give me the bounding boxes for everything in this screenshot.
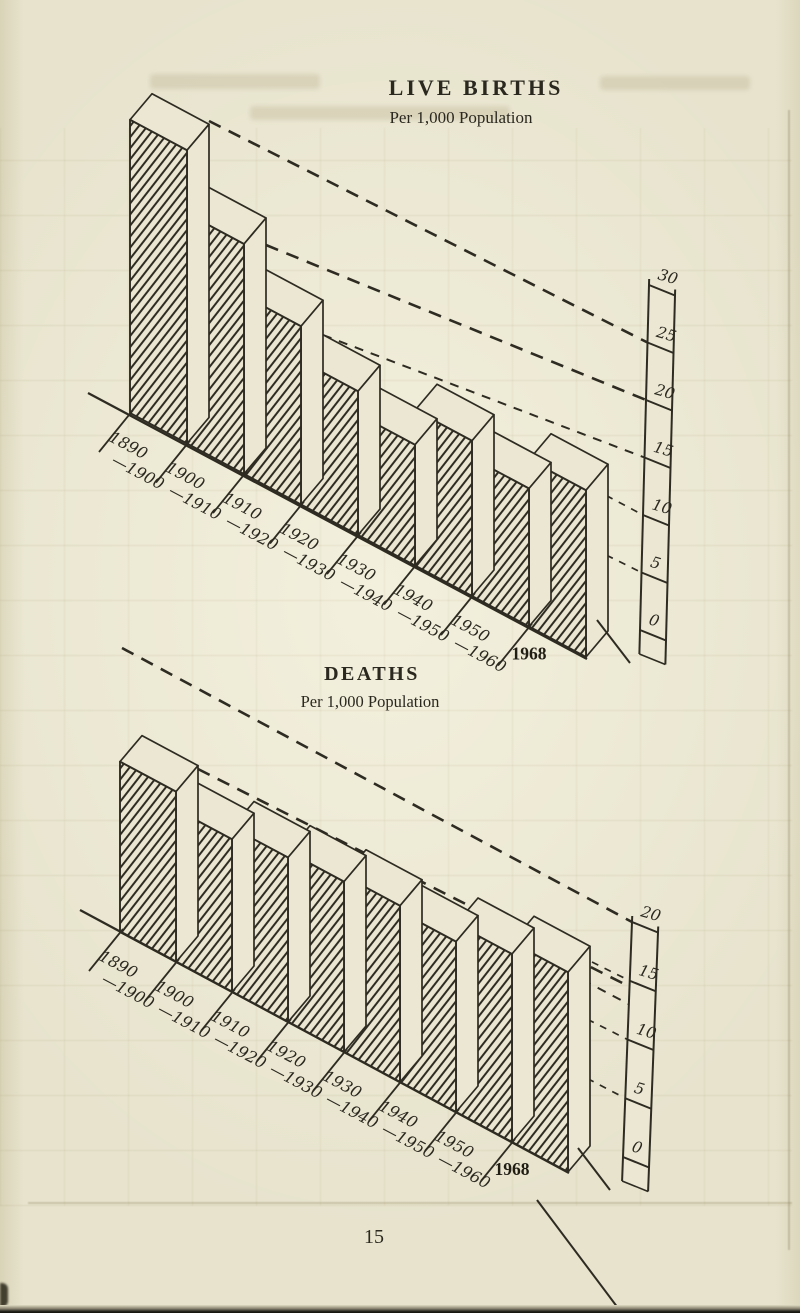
deaths-title: DEATHS [324, 663, 420, 685]
category-label-1968: 1968 [495, 1159, 530, 1179]
live-births-plot: 0510152025301890—19001900—19101910—19201… [88, 94, 680, 677]
bar-side-face [400, 880, 422, 1082]
live-births-title: LIVE BIRTHS [389, 75, 564, 100]
bar-side-face [586, 464, 608, 657]
page-number: 15 [364, 1226, 384, 1248]
category-label: 1940—1950 [367, 1096, 446, 1162]
category-label: 1890—1900 [97, 427, 176, 493]
deaths-subtitle: Per 1,000 Population [301, 692, 440, 711]
bar-side-face [288, 832, 310, 1023]
bar-side-face [232, 813, 254, 992]
bar-1890–1900 [130, 94, 209, 444]
scanned-report-page: LIVE BIRTHS Per 1,000 Population 0510152… [0, 0, 800, 1313]
bar-side-face [512, 928, 534, 1142]
floor-edge [597, 620, 630, 663]
category-label: 1930—1940 [311, 1066, 390, 1132]
bar-1890–1900 [120, 736, 198, 962]
floor-edge [578, 1148, 610, 1190]
category-label: 1910—1920 [211, 488, 290, 554]
bar-side-face [244, 218, 266, 474]
value-scale-deaths: 05101520 [622, 902, 663, 1191]
category-label: 1890—1900 [87, 946, 166, 1012]
category-label: 1920—1930 [268, 519, 347, 585]
category-label: 1950—1960 [423, 1126, 502, 1192]
category-label: 1920—1930 [255, 1036, 334, 1102]
scan-bottom-edge [0, 1305, 800, 1313]
bar-side-face [568, 946, 590, 1172]
bar-side-face [472, 415, 494, 596]
category-label: 1900—1910 [143, 976, 222, 1042]
category-label: 1940—1950 [382, 580, 461, 646]
floor-edge [537, 1200, 621, 1312]
bar-front-face [120, 762, 176, 962]
bar-side-face [301, 300, 323, 504]
bar-front-face [130, 120, 187, 444]
bar-side-face [456, 916, 478, 1112]
scan-blemish [0, 1283, 8, 1307]
value-scale-births: 051015202530 [639, 266, 680, 665]
bar-side-face [358, 365, 380, 535]
category-label-1968: 1968 [512, 644, 547, 664]
bar-side-face [176, 766, 198, 962]
live-births-chart: LIVE BIRTHS Per 1,000 Population 0510152… [88, 75, 680, 677]
charts-canvas: LIVE BIRTHS Per 1,000 Population 0510152… [0, 0, 800, 1313]
deaths-plot: 051015201890—19001900—19101910—19201920—… [80, 648, 663, 1312]
category-label: 1910—1920 [199, 1006, 278, 1072]
bar-side-face [344, 856, 366, 1052]
bar-side-face [415, 419, 437, 566]
category-label: 1950—1960 [439, 610, 518, 676]
deaths-chart: DEATHS Per 1,000 Population 051015201890… [80, 648, 663, 1312]
bar-side-face [187, 124, 209, 443]
bar-side-face [529, 463, 551, 627]
live-births-subtitle: Per 1,000 Population [389, 108, 533, 127]
category-label: 1900—1910 [154, 458, 233, 524]
category-label: 1930—1940 [325, 549, 404, 615]
